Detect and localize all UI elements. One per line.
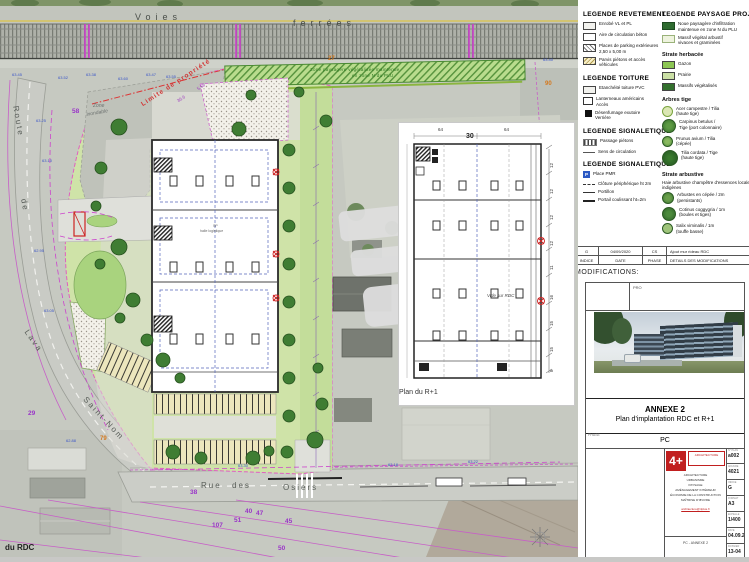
legend-item-label: Portillon (598, 189, 614, 195)
modifications-cell: G (578, 247, 599, 256)
legend-swatch (662, 72, 675, 80)
legend-item-label: Enrobé VL et PL (599, 21, 632, 27)
legend-item: Salix viminalis / 1m(touffe basse) (662, 223, 749, 234)
legend-swatch (583, 86, 596, 94)
legend-swatch (662, 61, 675, 69)
legend-item-label: Portail coulissant ht=2m (598, 197, 646, 203)
field-cell: INDICEG (727, 480, 744, 496)
field-label: DATE (728, 529, 743, 532)
title-block-header-row: PRO (586, 283, 744, 311)
field-cell: DATE04.09.20 (727, 528, 744, 544)
render-tree-mid (612, 318, 632, 344)
architect-logo: 4+ (666, 451, 686, 471)
legend-swatch (583, 200, 595, 202)
modifications-cell: DATE (599, 256, 643, 265)
legend-paysage-title: LEGENDE PAYSAGE PROJET (662, 11, 749, 18)
legend-item-label: Salix viminalis / 1m(touffe basse) (676, 223, 714, 234)
modifications-table: G04/09/2020CSAjout mur rideau RDCINDICED… (578, 246, 749, 265)
legend-item: Portillon (583, 189, 660, 195)
modifications-cell: INDICE (578, 256, 599, 265)
r1-floorplan-panel (398, 122, 575, 406)
field-cell: N° PLANa002 (727, 448, 744, 464)
project-render-image (594, 312, 744, 373)
legend-signaletique1: Passage piétonsSens de circulation (583, 138, 660, 154)
legend-swatch (662, 207, 676, 221)
legend-arbres-title: Arbres tige (662, 97, 749, 103)
legend-swatch (662, 192, 674, 204)
legend-item-label: Cotinus coggygria / 1m(boules et tiges) (679, 207, 725, 218)
legend-item-label: Gazon (678, 61, 691, 67)
annexe-subtitle: Plan d'implantation RDC et R+1 (586, 416, 744, 423)
phase-row: PHASE PC (586, 432, 744, 449)
phase-label: PHASE (588, 433, 600, 437)
legend-swatch (585, 110, 592, 117)
modifications-cell: DETAILS DES MODIFICATIONS (667, 256, 749, 265)
legend-item-label: Tilia cordata / Tige(haute tige) (681, 150, 718, 161)
legend-item: Enrobé VL et PL (583, 21, 660, 30)
field-label: INDICE (728, 481, 743, 484)
field-value: 1/400 (728, 517, 743, 523)
building-rdc (152, 140, 279, 392)
legend-swatch (583, 22, 596, 30)
field-label: DOSSIER (728, 545, 743, 548)
legend-swatch: P (583, 171, 590, 178)
legend-swatch (662, 106, 673, 117)
legend-column-left: LEGENDE REVETEMENT Enrobé VL et PLAire d… (583, 4, 660, 205)
field-cell: FORMATA3 (727, 496, 744, 512)
legend-column-right: LEGENDE PAYSAGE PROJET Noue paysagère d'… (662, 4, 749, 237)
legend-swatch (583, 139, 597, 146)
legend-item-label: Arbustes en cépée / 2m(persistants) (677, 192, 725, 203)
legend-item: Massif végétal arbustifvivaces et gramin… (662, 35, 749, 46)
legend-item-label: Parvis piétons et accès véhicules (599, 57, 660, 68)
legend-item: Cotinus coggygria / 1m(boules et tiges) (662, 207, 749, 221)
legend-item-label: Prunus avium / Tilia(cépée) (676, 136, 715, 147)
legend-item-label: Etanchéité toiture PVC (599, 85, 645, 91)
legend-swatch (583, 33, 596, 41)
annexe-title-box: ANNEXE 2 Plan d'implantation RDC et R+1 (586, 398, 744, 434)
legend-swatch (662, 150, 678, 166)
field-value: G (728, 485, 743, 491)
field-label: N° PLAN (728, 449, 743, 452)
plan-reference: PC - ANNEXE 2 (664, 536, 727, 559)
legend-item: Prunus avium / Tilia(cépée) (662, 136, 749, 147)
legend-item: PPlace PMR (583, 171, 660, 178)
field-value: 4021 (728, 469, 743, 475)
render-building-core (733, 325, 742, 357)
sheet-bottom-edge (0, 557, 749, 562)
legend-swatch (662, 223, 673, 234)
legend-item: Noue paysagère d'infiltrationmaintenue e… (662, 21, 749, 32)
modifications-cell: 04/09/2020 (599, 247, 643, 256)
legend-item: Parvis piétons et accès véhicules (583, 57, 660, 68)
legend-item-label: Aire de circulation béton (599, 32, 647, 38)
legend-signaletique2: PPlace PMRClôture périphérique ht 2mPort… (583, 171, 660, 202)
field-cell: AFFAIRE4021 (727, 464, 744, 480)
legend-swatch (662, 119, 676, 133)
legend-item: Massifs végétalisés (662, 83, 749, 92)
legend-revetement-title: LEGENDE REVETEMENT (583, 11, 660, 18)
architect-cell: 4+ ARCHITECTURE ARCHITECTUREURBANISMEPAY… (664, 448, 727, 559)
legend-item-label: Places de parking extérieures2,50 x 5,00… (599, 43, 658, 54)
modifications-cell: PHASE (643, 256, 667, 265)
pro-label: PRO (633, 285, 642, 290)
legend-swatch (583, 152, 595, 153)
legend-item-label: Clôture périphérique ht 2m (598, 181, 651, 187)
legend-swatch (662, 22, 675, 30)
render-building-wing (634, 334, 664, 356)
render-building (660, 322, 738, 360)
legend-item: Acer campestre / Tilia(haute tige) (662, 106, 749, 117)
plan-sheet: VoiesferréesRoutedeLavaSaint-NomRuedesOs… (0, 0, 749, 562)
field-value: A3 (728, 501, 743, 507)
legend-item: Etanchéité toiture PVC (583, 85, 660, 94)
client-cell (586, 448, 665, 559)
field-label: ECHELLE (728, 513, 743, 516)
legend-herbacee-title: Strate herbacée (662, 52, 749, 58)
legend-item: Gazon (662, 61, 749, 70)
legend-swatch (583, 184, 595, 185)
legend-item-label: Massif végétal arbustifvivaces et gramin… (678, 35, 723, 46)
legend-item: Prairie (662, 72, 749, 81)
modifications-cell: Ajout mur rideau RDC (667, 247, 749, 256)
legend-item: Places de parking extérieures2,50 x 5,00… (583, 43, 660, 54)
legend-item: Arbustes en cépée / 2m(persistants) (662, 192, 749, 204)
legend-item: Clôture périphérique ht 2m (583, 181, 660, 187)
field-value: 13-04 (728, 549, 743, 555)
phase-value: PC (586, 437, 744, 444)
legend-swatch (583, 44, 596, 52)
legend-item: Lanterneaux américainsAccès (583, 96, 660, 107)
modifications-caption: MODIFICATIONS: (578, 269, 639, 276)
legend-item: Tilia cordata / Tige(haute tige) (662, 150, 749, 166)
sheet-panel: LEGENDE REVETEMENT Enrobé VL et PLAire d… (578, 0, 749, 562)
render-van (624, 354, 641, 363)
field-label: AFFAIRE (728, 465, 743, 468)
legend-item: Portail coulissant ht=2m (583, 197, 660, 203)
legend-item-label: Prairie (678, 72, 691, 78)
legend-item-label: Place PMR (593, 171, 616, 177)
legend-item: Désenfumage exutoireVerrière (583, 110, 660, 121)
title-block-frame: PRO ANNEXE 2 Plan d'implantation RDC et … (585, 282, 745, 560)
legend-item-label: Sens de circulation (598, 149, 636, 155)
architect-address: ARCHITECTUREURBANISMEPAYSAGEAMÉNAGEMENT … (664, 473, 727, 504)
legend-signaletique1-title: LEGENDE SIGNALETIQUE (583, 128, 660, 135)
legend-signaletique2-title: LEGENDE SIGNALETIQUE (583, 161, 660, 168)
legend-item-label: Désenfumage exutoireVerrière (595, 110, 640, 121)
fields-column: N° PLANa002AFFAIRE4021INDICEGFORMATA3ECH… (726, 448, 744, 559)
legend-arbustive-note: Haie arbustive champêtre d'essences loca… (662, 180, 749, 190)
legend-item-label: Noue paysagère d'infiltrationmaintenue e… (678, 21, 737, 32)
architect-contact: architecture@4plus.fr (664, 507, 727, 511)
legend-item-label: Lanterneaux américainsAccès (596, 96, 644, 107)
legend-item-label: Massifs végétalisés (678, 83, 717, 89)
legend-item: Aire de circulation béton (583, 32, 660, 41)
legend-swatch (662, 136, 673, 147)
field-label: FORMAT (728, 497, 743, 500)
legend-swatch (583, 192, 595, 193)
modifications-cell: CS (643, 247, 667, 256)
annexe-title: ANNEXE 2 (586, 405, 744, 414)
north-compass (530, 527, 550, 547)
legend-toiture: Etanchéité toiture PVCLanterneaux améric… (583, 85, 660, 121)
legend-toiture-title: LEGENDE TOITURE (583, 75, 660, 82)
field-value: 04.09.20 (728, 533, 743, 539)
legend-arbustive-title: Strate arbustive (662, 172, 749, 178)
legend-item-label: Passage piétons (600, 138, 633, 144)
address-line: MAÎTRISE D'ŒUVRE (664, 498, 727, 503)
render-road (612, 360, 682, 366)
legend-item: Carpinus betulus /Tige (port colonnaire) (662, 119, 749, 133)
legend-arbres: Acer campestre / Tilia(haute tige)Carpin… (662, 106, 749, 166)
field-value: a002 (728, 453, 743, 459)
legend-item-label: Acer campestre / Tilia(haute tige) (676, 106, 719, 117)
legend-paysage: Noue paysagère d'infiltrationmaintenue e… (662, 21, 749, 46)
legend-herbacee: GazonPrairieMassifs végétalisés (662, 61, 749, 92)
legend-swatch (583, 57, 596, 65)
legend-revetement: Enrobé VL et PLAire de circulation béton… (583, 21, 660, 68)
legend-item-label: Carpinus betulus /Tige (port colonnaire) (679, 119, 722, 130)
legend-swatch (662, 83, 675, 91)
legend-item: Sens de circulation (583, 149, 660, 155)
legend-swatch (583, 97, 593, 105)
cartouche-bottom: 4+ ARCHITECTURE ARCHITECTUREURBANISMEPAY… (586, 448, 744, 559)
field-cell: ECHELLE1/400 (727, 512, 744, 528)
legend-item: Passage piétons (583, 138, 660, 146)
r1-floorplan-svg (399, 123, 574, 405)
legend-arbustive: Arbustes en cépée / 2m(persistants)Cotin… (662, 192, 749, 234)
legend-swatch (662, 35, 675, 43)
architect-firm: ARCHITECTURE (688, 451, 725, 466)
